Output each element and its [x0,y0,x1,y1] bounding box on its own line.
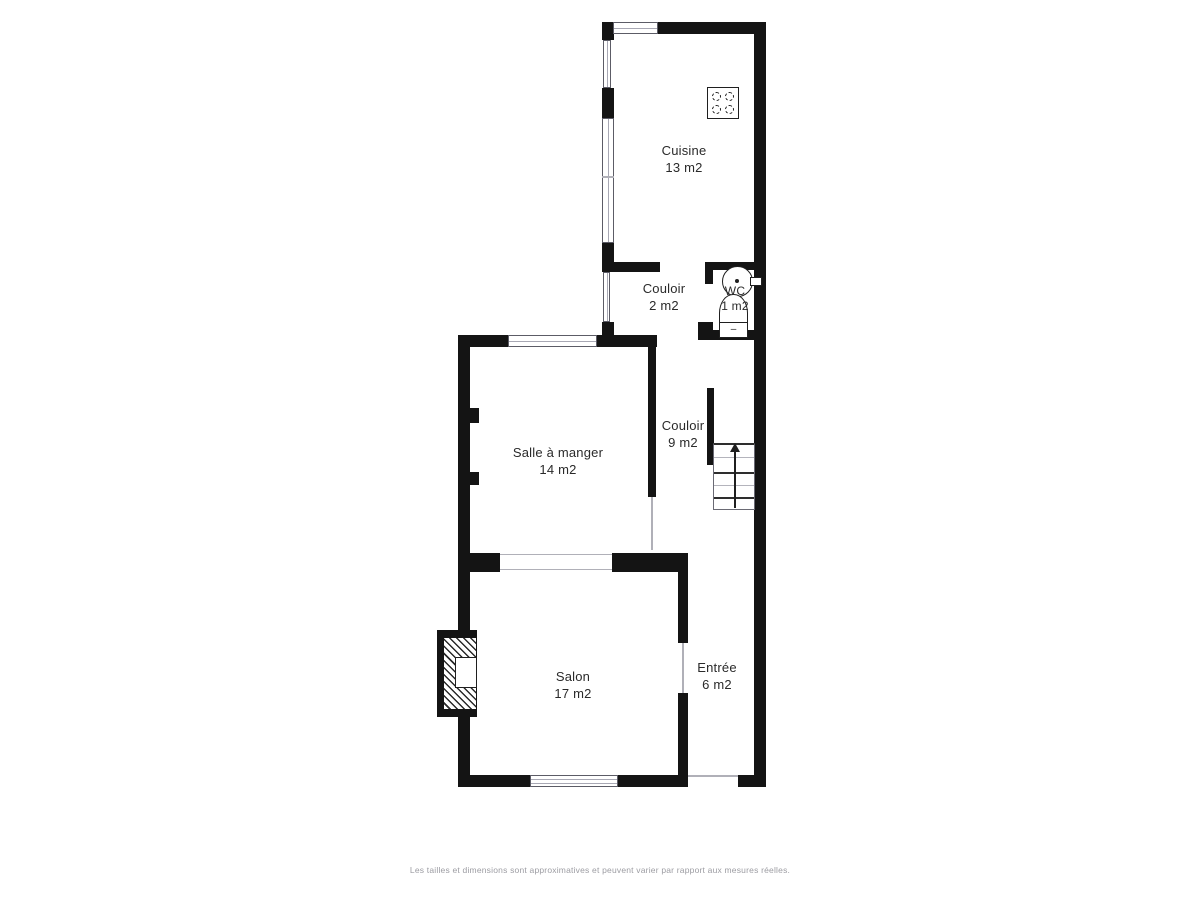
opening-line [500,569,612,570]
room-area: 17 m2 [554,685,591,702]
wall-entree-left-a [678,570,688,643]
toilet-flush-mark: – [731,325,737,335]
room-name: Salle à manger [513,444,603,461]
toilet-tank: – [719,322,748,338]
window-icon [603,40,611,88]
door-opening-dining [651,497,653,550]
room-name: Entrée [697,659,737,676]
room-area: 6 m2 [697,676,737,693]
wall-exterior-right [754,22,766,787]
fireplace-firebox [455,657,477,688]
stairs-up-arrow-head [730,443,740,452]
room-name: Salon [554,668,591,685]
window-icon [602,118,614,243]
room-label-salle-a-manger: Salle à manger 14 m2 [513,444,603,478]
window-icon [530,775,618,787]
room-label-wc: WC 1 m2 [721,284,748,314]
wall-salon-left-a [458,570,470,632]
window-icon [613,22,658,34]
room-name: Couloir [643,280,686,297]
wall-entree-left-b [678,693,688,787]
room-area: 2 m2 [643,297,686,314]
room-name: Couloir [662,417,705,434]
wall-wc-left-stub [705,262,713,284]
wall-entree-bottom-corner [738,775,766,787]
room-label-couloir-2: Couloir 2 m2 [643,280,686,314]
radiator-icon [470,408,479,423]
room-label-entree: Entrée 6 m2 [697,659,737,693]
stove-burner [725,105,734,114]
wall-kitchen-left-b [602,88,614,118]
sink-tap [750,277,762,286]
stairs-up-arrow-icon [734,452,736,508]
floor-plan: – Cuisine 13 m2 Couloir 2 m2 WC 1 m2 Sal… [0,0,1200,900]
window-icon [603,272,610,322]
front-door-opening [688,775,738,777]
room-label-couloir-9: Couloir 9 m2 [662,417,705,451]
wall-dining-right [648,347,656,497]
wall-dining-top-right [597,335,657,347]
room-area: 9 m2 [662,434,705,451]
window-divider [602,176,614,178]
radiator-icon [470,472,479,485]
sink-drain-dot [735,279,739,283]
room-area: 13 m2 [662,159,707,176]
wall-kitchen-bottom [602,262,660,272]
room-label-salon: Salon 17 m2 [554,668,591,702]
stove-burner [712,105,721,114]
door-opening-entree [682,643,684,693]
opening-line [500,554,612,555]
stove-burner [712,92,721,101]
room-name: Cuisine [662,142,707,159]
window-icon [508,335,597,347]
room-area: 14 m2 [513,461,603,478]
wall-salon-top-right [612,553,688,572]
room-area: 1 m2 [721,299,748,314]
room-name: WC [721,284,748,299]
wall-dining-left [458,335,470,553]
wall-wc-bottom-stub [698,322,713,340]
stove-icon [707,87,739,119]
room-label-cuisine: Cuisine 13 m2 [662,142,707,176]
stove-burner [725,92,734,101]
disclaimer-text: Les tailles et dimensions sont approxima… [0,865,1200,875]
